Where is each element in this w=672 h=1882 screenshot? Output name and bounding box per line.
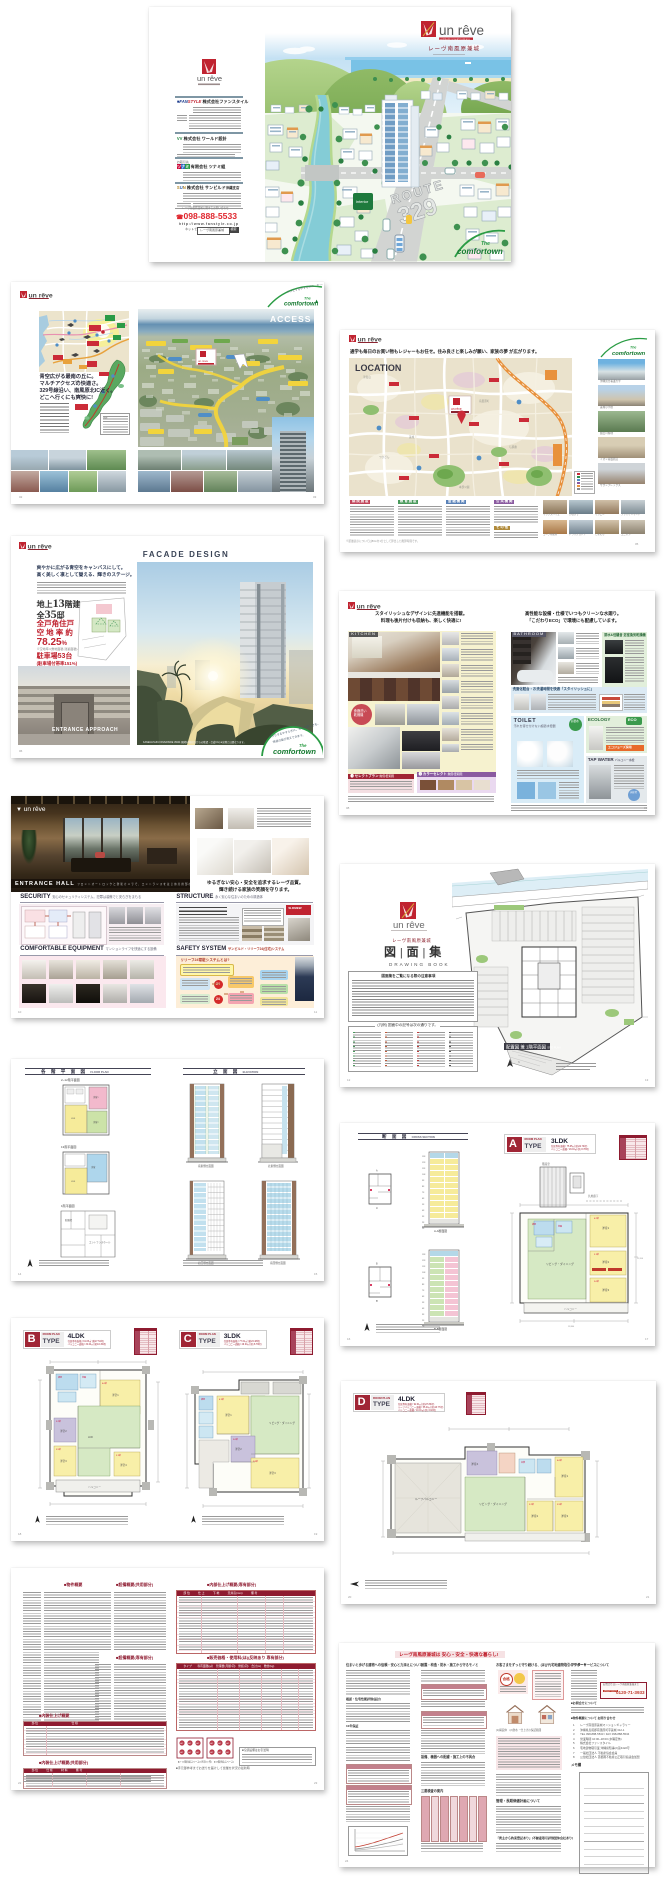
svg-text:洋室2: 洋室2 bbox=[531, 1514, 539, 1518]
svg-text:洋室1: 洋室1 bbox=[112, 1393, 119, 1397]
svg-text:与那覇: 与那覇 bbox=[509, 445, 517, 449]
svg-text:階段室: 階段室 bbox=[542, 1162, 550, 1166]
svg-text:11F: 11F bbox=[422, 1266, 426, 1268]
svg-text:5F: 5F bbox=[422, 1302, 425, 1304]
svg-text:バルコニー: バルコニー bbox=[564, 1307, 577, 1311]
svg-text:HAEBARU KANEGUSUKU: HAEBARU KANEGUSUKU bbox=[440, 38, 470, 41]
svg-text:12F: 12F bbox=[422, 1260, 426, 1262]
svg-text:comfortown: comfortown bbox=[612, 351, 646, 357]
svg-text:津嘉山: 津嘉山 bbox=[363, 375, 371, 379]
svg-text:un rêve: un rêve bbox=[393, 920, 425, 931]
svg-text:A-A断面図: A-A断面図 bbox=[434, 1229, 447, 1233]
svg-text:共用廊下: 共用廊下 bbox=[588, 1194, 599, 1198]
svg-text:洋室1: 洋室1 bbox=[561, 1474, 569, 1478]
svg-text:リビング・ダイニング: リビング・ダイニング bbox=[269, 1421, 295, 1425]
svg-text:B': B' bbox=[376, 1300, 379, 1303]
svg-text:B: B bbox=[376, 1263, 378, 1266]
svg-text:13F: 13F bbox=[422, 1156, 426, 1158]
svg-text:13F: 13F bbox=[422, 1254, 426, 1256]
svg-text:4F: 4F bbox=[422, 1210, 425, 1212]
svg-text:洋室4: 洋室4 bbox=[120, 1463, 127, 1467]
svg-text:洋室3: 洋室3 bbox=[561, 1514, 569, 1518]
svg-text:7F: 7F bbox=[422, 1192, 425, 1194]
svg-text:comfortown: comfortown bbox=[457, 247, 503, 256]
svg-text:un rêve: un rêve bbox=[439, 23, 484, 38]
svg-text:4F: 4F bbox=[422, 1308, 425, 1310]
svg-text:un rêve: un rêve bbox=[198, 359, 208, 363]
svg-text:KANEGUSUKU RIVERSIDE VIEW (現地1: KANEGUSUKU RIVERSIDE VIEW (現地13階相当からの眺望・… bbox=[143, 740, 246, 744]
svg-text:5F: 5F bbox=[422, 1204, 425, 1206]
svg-text:本部公園: 本部公園 bbox=[459, 485, 470, 489]
svg-text:エントランスホール: エントランスホール bbox=[89, 1240, 111, 1244]
svg-text:兼城: 兼城 bbox=[409, 435, 415, 439]
svg-text:A: A bbox=[376, 1169, 378, 1172]
svg-text:■2~12階供給スペース(1世帯6ヶ所) ■13階供給スペー: ■2~12階供給スペース(1世帯6ヶ所) ■13階供給スペース(1世帯6ヶ所) bbox=[178, 1759, 234, 1763]
svg-text:comfortown: comfortown bbox=[273, 747, 316, 756]
svg-text:南風原町: 南風原町 bbox=[479, 399, 490, 403]
svg-text:洋室1: 洋室1 bbox=[602, 1226, 610, 1230]
svg-text:11,200: 11,200 bbox=[637, 1258, 644, 1260]
svg-text:南東側立面図: 南東側立面図 bbox=[198, 1164, 214, 1168]
svg-text:13,800: 13,800 bbox=[568, 1326, 575, 1328]
svg-text:洋室2: 洋室2 bbox=[602, 1260, 610, 1264]
svg-text:A': A' bbox=[376, 1207, 379, 1210]
svg-text:洋室4: 洋室4 bbox=[471, 1462, 479, 1466]
svg-text:リビング・ダイニング: リビング・ダイニング bbox=[546, 1262, 574, 1266]
svg-text:駐輪場: 駐輪場 bbox=[65, 1218, 73, 1222]
svg-text:10F: 10F bbox=[422, 1272, 426, 1274]
svg-text:洋室2: 洋室2 bbox=[60, 1429, 67, 1433]
svg-text:洋室2: 洋室2 bbox=[235, 1447, 242, 1451]
svg-text:12F: 12F bbox=[422, 1162, 426, 1164]
svg-text:comfortown: comfortown bbox=[284, 302, 319, 308]
svg-text:7F: 7F bbox=[422, 1290, 425, 1292]
svg-text:un rêve: un rêve bbox=[451, 407, 462, 411]
svg-text:6F: 6F bbox=[422, 1296, 425, 1298]
svg-text:LDK: LDK bbox=[88, 1435, 93, 1439]
svg-text:1F: 1F bbox=[422, 1228, 425, 1230]
svg-text:バルコニー: バルコニー bbox=[88, 1485, 101, 1489]
svg-text:10F: 10F bbox=[422, 1174, 426, 1176]
svg-text:洋室3: 洋室3 bbox=[602, 1288, 610, 1292]
svg-text:洋室3: 洋室3 bbox=[269, 1471, 276, 1475]
svg-text:つかざん: つかざん bbox=[379, 455, 390, 459]
svg-text:北東側立面図: 北東側立面図 bbox=[268, 1164, 284, 1168]
svg-text:洋室1: 洋室1 bbox=[225, 1413, 232, 1417]
svg-text:interior: interior bbox=[356, 199, 369, 204]
svg-text:N: N bbox=[518, 1061, 520, 1064]
svg-text:レーヴ南風原兼城: レーヴ南風原兼城 bbox=[428, 45, 480, 53]
svg-text:un rêve: un rêve bbox=[197, 74, 222, 83]
svg-text:11F: 11F bbox=[422, 1168, 426, 1170]
svg-text:ホッとするやすらぎに、もっと楽しさを。: ホッとするやすらぎに、もっと楽しさを。 bbox=[286, 284, 323, 294]
svg-text:洋室3: 洋室3 bbox=[60, 1459, 67, 1463]
svg-text:LOCATION: LOCATION bbox=[355, 363, 401, 373]
svg-text:6F: 6F bbox=[422, 1198, 425, 1200]
svg-text:9F: 9F bbox=[422, 1278, 425, 1280]
svg-text:8F: 8F bbox=[422, 1284, 425, 1286]
svg-text:3F: 3F bbox=[422, 1314, 425, 1316]
svg-text:2F: 2F bbox=[422, 1320, 425, 1322]
svg-text:9F: 9F bbox=[422, 1180, 425, 1182]
svg-text:LDK: LDK bbox=[71, 1118, 76, 1120]
svg-text:3F: 3F bbox=[422, 1216, 425, 1218]
svg-text:ルーフバルコニー: ルーフバルコニー bbox=[415, 1497, 437, 1501]
svg-text:リビング・ダイニング: リビング・ダイニング bbox=[479, 1502, 507, 1506]
svg-text:8F: 8F bbox=[422, 1186, 425, 1188]
svg-text:LDK: LDK bbox=[71, 1181, 76, 1183]
svg-text:The: The bbox=[304, 297, 311, 301]
svg-text:The: The bbox=[630, 346, 636, 350]
svg-text:2F: 2F bbox=[422, 1222, 425, 1224]
